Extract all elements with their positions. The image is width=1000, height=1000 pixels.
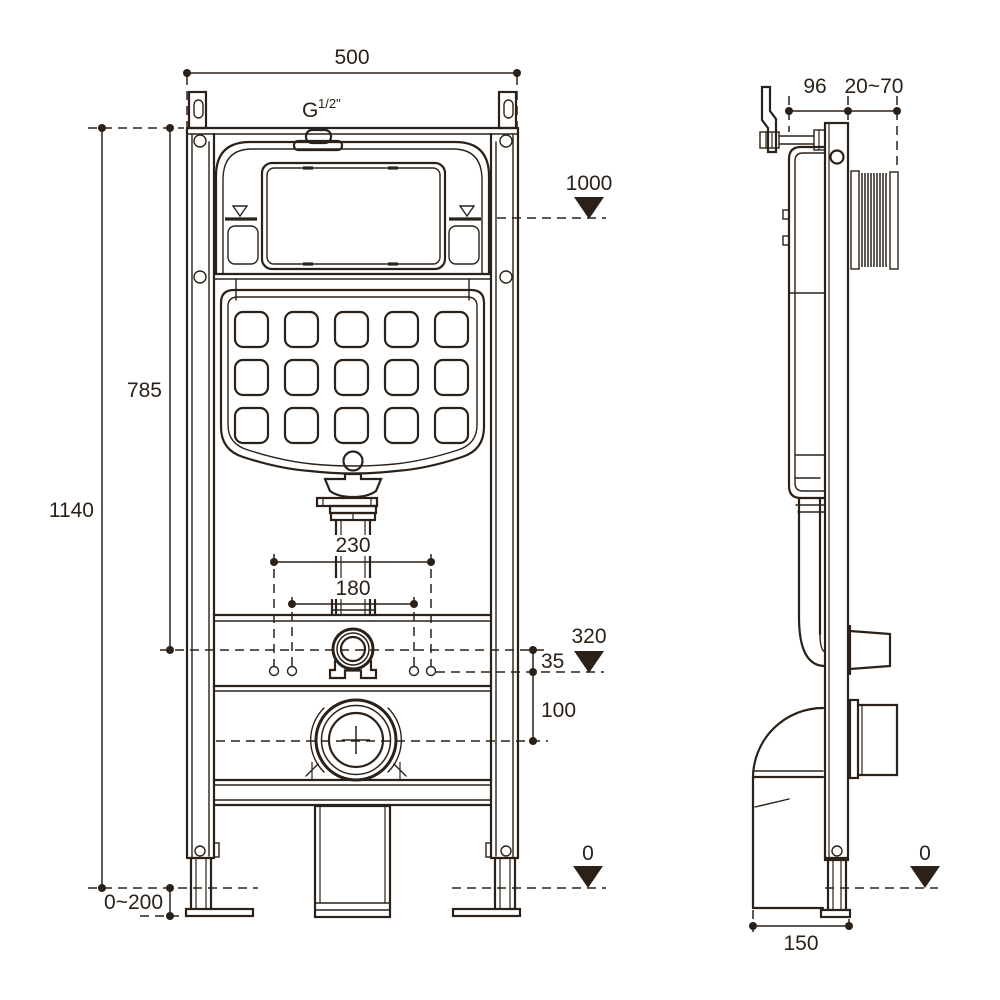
level-0-front-marker bbox=[573, 866, 603, 888]
technical-drawing: 500 G 1/2" 1000 785 1140 230 180 320 35 bbox=[0, 0, 1000, 1000]
corrugated-sleeve bbox=[851, 171, 898, 269]
side-waste-elbow bbox=[753, 708, 823, 908]
water-level-mark-right bbox=[449, 206, 481, 219]
side-construction-lines bbox=[753, 96, 938, 932]
access-panel bbox=[262, 163, 445, 269]
cistern-housing bbox=[214, 142, 491, 300]
waste-outlet bbox=[306, 700, 406, 780]
dim-20-70-label: 20~70 bbox=[845, 75, 904, 98]
drawing-canvas: 500 G 1/2" 1000 785 1140 230 180 320 35 bbox=[0, 0, 1000, 1000]
side-dimensions: 96 20~70 0 150 bbox=[749, 75, 940, 955]
dim-0-200-label: 0~200 bbox=[104, 891, 163, 914]
adjustable-foot-right bbox=[453, 858, 520, 916]
adjustable-foot-left bbox=[186, 858, 253, 916]
dim-230-label: 230 bbox=[335, 534, 370, 557]
dim-35-label: 35 bbox=[541, 650, 564, 673]
side-cistern bbox=[783, 147, 825, 498]
dim-150-label: 150 bbox=[783, 932, 818, 955]
inlet-thread-label: G bbox=[302, 99, 318, 122]
level-1000-marker bbox=[574, 197, 604, 219]
level-320-marker bbox=[574, 651, 604, 673]
inlet-thread-sup-label: 1/2" bbox=[318, 96, 341, 111]
dim-180-label: 180 bbox=[335, 577, 370, 600]
side-frame-upright bbox=[825, 123, 848, 860]
dim-100-label: 100 bbox=[541, 699, 576, 722]
dim-1140-label: 1140 bbox=[49, 499, 94, 522]
level-320-label: 320 bbox=[571, 625, 606, 648]
level-0-side-marker bbox=[910, 866, 940, 888]
drain-duct bbox=[315, 806, 390, 917]
side-view: 96 20~70 0 150 bbox=[749, 75, 940, 955]
level-0-side-label: 0 bbox=[919, 842, 931, 865]
water-inlet-connection bbox=[294, 130, 342, 150]
front-dimensions: 500 G 1/2" 1000 785 1140 230 180 320 35 bbox=[49, 46, 613, 920]
tank-emboss-grid bbox=[235, 312, 468, 443]
cistern-tank bbox=[221, 290, 484, 474]
level-1000-label: 1000 bbox=[566, 172, 613, 195]
flush-bend-fitting bbox=[330, 629, 376, 678]
level-0-front-label: 0 bbox=[582, 842, 594, 865]
side-flush-pipe bbox=[796, 498, 825, 666]
dim-785-label: 785 bbox=[127, 379, 162, 402]
water-level-mark-left bbox=[225, 206, 257, 219]
front-view: 500 G 1/2" 1000 785 1140 230 180 320 35 bbox=[49, 46, 613, 920]
waste-wall-stub bbox=[850, 700, 897, 778]
dim-96-label: 96 bbox=[803, 75, 826, 98]
dim-500-label: 500 bbox=[334, 46, 369, 69]
flush-wall-stub bbox=[850, 626, 890, 674]
tank-drain-hole bbox=[344, 452, 363, 471]
